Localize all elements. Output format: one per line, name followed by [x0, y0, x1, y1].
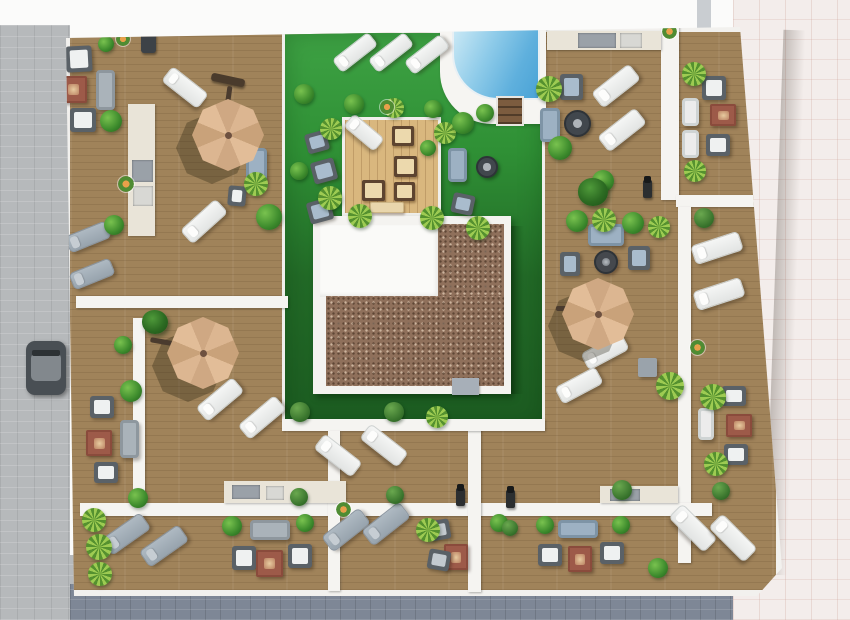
palm-plant	[700, 384, 726, 410]
service-box	[452, 378, 479, 395]
armchair	[600, 542, 624, 564]
dining-table	[476, 156, 498, 178]
palm-plant	[244, 172, 268, 196]
fire-pit-table	[726, 414, 752, 437]
boxwood-sphere	[612, 480, 632, 500]
boxwood-sphere	[290, 488, 308, 506]
shrub	[104, 215, 124, 235]
lamp-post	[456, 488, 465, 506]
armchair	[426, 548, 451, 572]
parapet-wall	[676, 195, 756, 207]
armchair	[232, 546, 256, 570]
armchair	[702, 76, 726, 100]
shrub	[536, 516, 554, 534]
palm-plant	[88, 562, 112, 586]
sofa	[682, 98, 699, 126]
bbq-grill	[141, 31, 156, 53]
gravel-roof-lower	[326, 296, 504, 386]
shrub	[612, 516, 630, 534]
flower-pot	[118, 176, 134, 192]
parapet-wall	[661, 24, 679, 200]
flower-pot	[662, 24, 677, 39]
shrub	[648, 558, 668, 578]
flower-pot	[116, 32, 130, 46]
shrub	[256, 204, 282, 230]
armchair	[94, 462, 118, 483]
fire-pit-table	[568, 546, 592, 572]
shrub	[222, 516, 242, 536]
sofa	[96, 70, 115, 110]
pergola-table	[392, 126, 414, 146]
kitchen-appliance	[133, 186, 153, 206]
palm-plant	[536, 76, 562, 102]
sofa	[558, 520, 598, 538]
shrub	[128, 488, 148, 508]
lamp-post	[506, 490, 515, 508]
fire-pit-table	[256, 550, 283, 577]
dining-table	[564, 110, 591, 137]
palm-plant	[320, 118, 342, 140]
fire-pit-table	[710, 104, 736, 126]
shrub	[420, 140, 436, 156]
armchair	[65, 45, 92, 72]
parked-car	[26, 341, 66, 395]
armchair	[560, 252, 580, 276]
roof-plate	[0, 0, 850, 620]
palm-plant	[682, 62, 706, 86]
shrub	[548, 136, 572, 160]
parasol-umbrella	[192, 99, 264, 171]
kitchen-appliance	[620, 33, 642, 48]
boxwood-sphere	[384, 402, 404, 422]
tree	[578, 178, 608, 206]
armchair	[706, 134, 730, 156]
sofa	[120, 420, 139, 458]
shrub	[120, 380, 142, 402]
palm-plant	[466, 216, 490, 240]
flower-pot	[380, 100, 394, 114]
armchair	[70, 108, 96, 132]
parapet-wall	[468, 420, 481, 592]
shrub	[98, 36, 114, 52]
palm-plant	[656, 372, 684, 400]
pergola-table	[394, 156, 417, 177]
shrub	[566, 210, 588, 232]
palm-plant	[704, 452, 728, 476]
boxwood-sphere	[502, 520, 518, 536]
palm-plant	[348, 204, 372, 228]
shrub	[622, 212, 644, 234]
sofa	[448, 148, 467, 182]
kitchen-appliance	[266, 486, 284, 500]
core-white-roof	[320, 225, 438, 297]
parapet-wall	[76, 296, 288, 308]
pool-steps	[496, 96, 524, 126]
palm-plant	[426, 406, 448, 428]
palm-plant	[684, 160, 706, 182]
shrub	[100, 110, 122, 132]
parapet-wall	[133, 318, 145, 494]
pergola-table	[362, 180, 385, 201]
kitchen-appliance	[578, 33, 616, 48]
palm-plant	[420, 206, 444, 230]
parapet-wall	[282, 419, 545, 431]
armchair	[90, 396, 114, 418]
armchair	[560, 74, 583, 100]
flower-pot	[690, 340, 705, 355]
kitchen-appliance	[132, 160, 153, 182]
fire-pit-table	[594, 250, 618, 274]
shrub	[296, 514, 314, 532]
sofa	[250, 520, 290, 540]
boxwood-sphere	[694, 208, 714, 228]
fire-pit-table	[86, 430, 112, 456]
tree	[142, 310, 168, 334]
shrub	[114, 336, 132, 354]
shrub	[294, 84, 314, 104]
sofa	[698, 408, 714, 440]
storage-cube	[638, 358, 657, 377]
pergola-bench	[370, 202, 404, 213]
boxwood-sphere	[712, 482, 730, 500]
shrub	[476, 104, 494, 122]
kitchen-appliance	[232, 485, 260, 499]
boxwood-sphere	[386, 486, 404, 504]
pergola-table	[394, 182, 415, 201]
sofa	[682, 130, 699, 158]
armchair	[538, 544, 562, 566]
flower-pot	[336, 502, 351, 517]
street-left	[0, 25, 70, 620]
palm-plant	[86, 534, 112, 560]
shrub	[290, 162, 308, 180]
rooftop-plan-render	[0, 0, 850, 620]
palm-plant	[648, 216, 670, 238]
palm-plant	[318, 186, 342, 210]
armchair	[628, 246, 650, 270]
lamp-post	[643, 180, 652, 198]
shrub	[452, 112, 474, 134]
palm-plant	[592, 208, 616, 232]
armchair	[450, 192, 476, 216]
shrub	[344, 94, 364, 114]
shrub	[424, 100, 442, 118]
wall-fragment-top	[697, 0, 711, 30]
boxwood-sphere	[290, 402, 310, 422]
armchair	[288, 544, 312, 568]
palm-plant	[416, 518, 440, 542]
core-shadow	[511, 226, 524, 394]
palm-plant	[82, 508, 106, 532]
